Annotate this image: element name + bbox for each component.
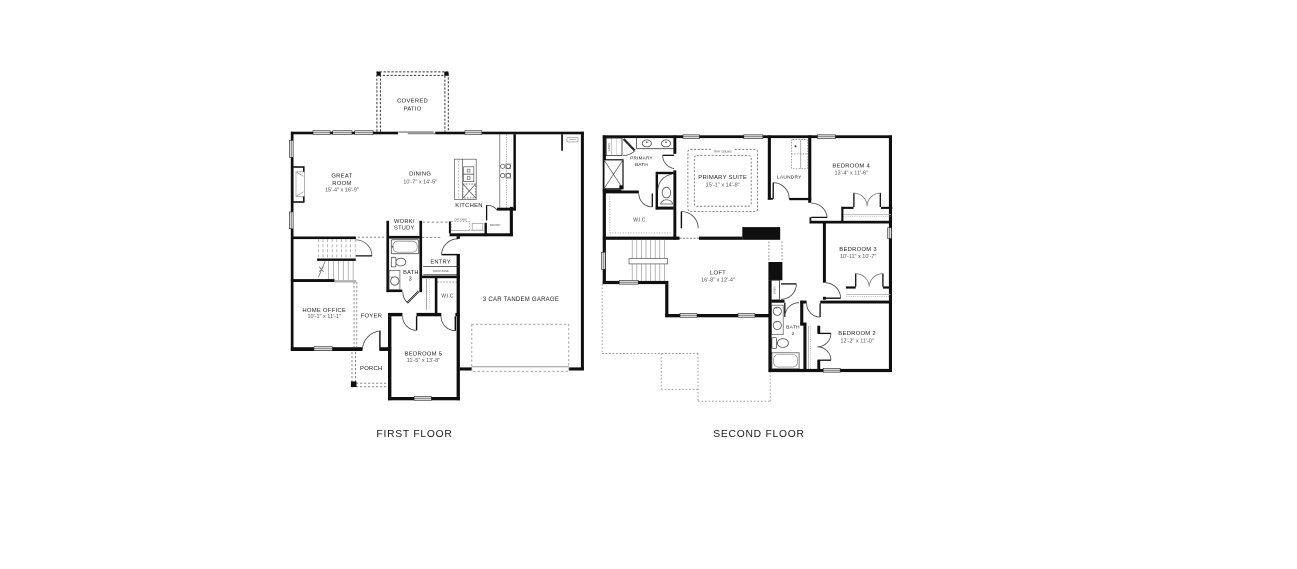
svg-text:BATH: BATH (635, 162, 648, 167)
svg-text:ENTRY: ENTRY (430, 260, 450, 266)
svg-text:STUDY: STUDY (394, 226, 415, 232)
svg-text:2: 2 (792, 331, 795, 337)
svg-text:KITCHEN: KITCHEN (455, 203, 483, 209)
svg-text:PRIMARY SUITE: PRIMARY SUITE (698, 175, 747, 181)
svg-text:LINEN: LINEN (607, 143, 611, 151)
svg-text:DINING: DINING (409, 172, 431, 178)
svg-text:LAUNDRY: LAUNDRY (777, 175, 802, 181)
svg-text:PANTRY: PANTRY (490, 223, 501, 227)
svg-text:PATIO: PATIO (404, 107, 422, 113)
svg-text:10'-7" x 14'-5": 10'-7" x 14'-5" (403, 179, 437, 185)
svg-text:BEDROOM 4: BEDROOM 4 (832, 163, 870, 169)
svg-text:W.I.C.: W.I.C. (633, 218, 647, 224)
svg-text:W.I.C.: W.I.C. (441, 294, 455, 300)
svg-text:BEDROOM 3: BEDROOM 3 (839, 247, 877, 253)
svg-text:TRAY CEILING: TRAY CEILING (713, 149, 731, 153)
svg-text:BEDROOM 2: BEDROOM 2 (838, 331, 876, 337)
svg-text:15'-4" x 16'-9": 15'-4" x 16'-9" (325, 188, 359, 194)
svg-text:COVERED: COVERED (397, 99, 428, 105)
svg-text:FOYER: FOYER (361, 314, 383, 320)
svg-text:ROOM: ROOM (332, 181, 351, 187)
svg-text:PRIMARY: PRIMARY (630, 156, 653, 161)
svg-text:SECOND FLOOR: SECOND FLOOR (713, 429, 804, 440)
svg-text:WORK/: WORK/ (394, 219, 415, 225)
svg-text:OPT. CABS: OPT. CABS (455, 218, 467, 221)
svg-text:PORCH: PORCH (360, 366, 383, 372)
svg-text:12'-2" x 11'-0": 12'-2" x 11'-0" (840, 339, 873, 345)
svg-text:FIRST FLOOR: FIRST FLOOR (376, 429, 452, 440)
svg-text:3 CAR TANDEM GARAGE: 3 CAR TANDEM GARAGE (483, 297, 559, 303)
svg-text:LINEN: LINEN (773, 286, 777, 294)
svg-text:15'-1" x 14'-8": 15'-1" x 14'-8" (706, 182, 740, 188)
svg-text:16'-8" x 12'-4": 16'-8" x 12'-4" (701, 277, 735, 283)
svg-text:BEDROOM 5: BEDROOM 5 (405, 352, 443, 358)
svg-text:3: 3 (409, 277, 412, 283)
svg-text:BATH: BATH (786, 324, 800, 330)
svg-text:DROP ZONE: DROP ZONE (433, 269, 449, 273)
svg-text:10'-11" x 10'-7": 10'-11" x 10'-7" (840, 254, 877, 260)
svg-text:13'-4" x 11'-6": 13'-4" x 11'-6" (834, 171, 867, 177)
svg-text:LOFT: LOFT (710, 271, 726, 277)
svg-text:11'-5" x 13'-8": 11'-5" x 13'-8" (407, 358, 440, 364)
svg-text:10'-1" x 11'-1": 10'-1" x 11'-1" (307, 314, 340, 320)
svg-text:BATH: BATH (403, 270, 419, 276)
svg-text:GREAT: GREAT (331, 174, 352, 180)
